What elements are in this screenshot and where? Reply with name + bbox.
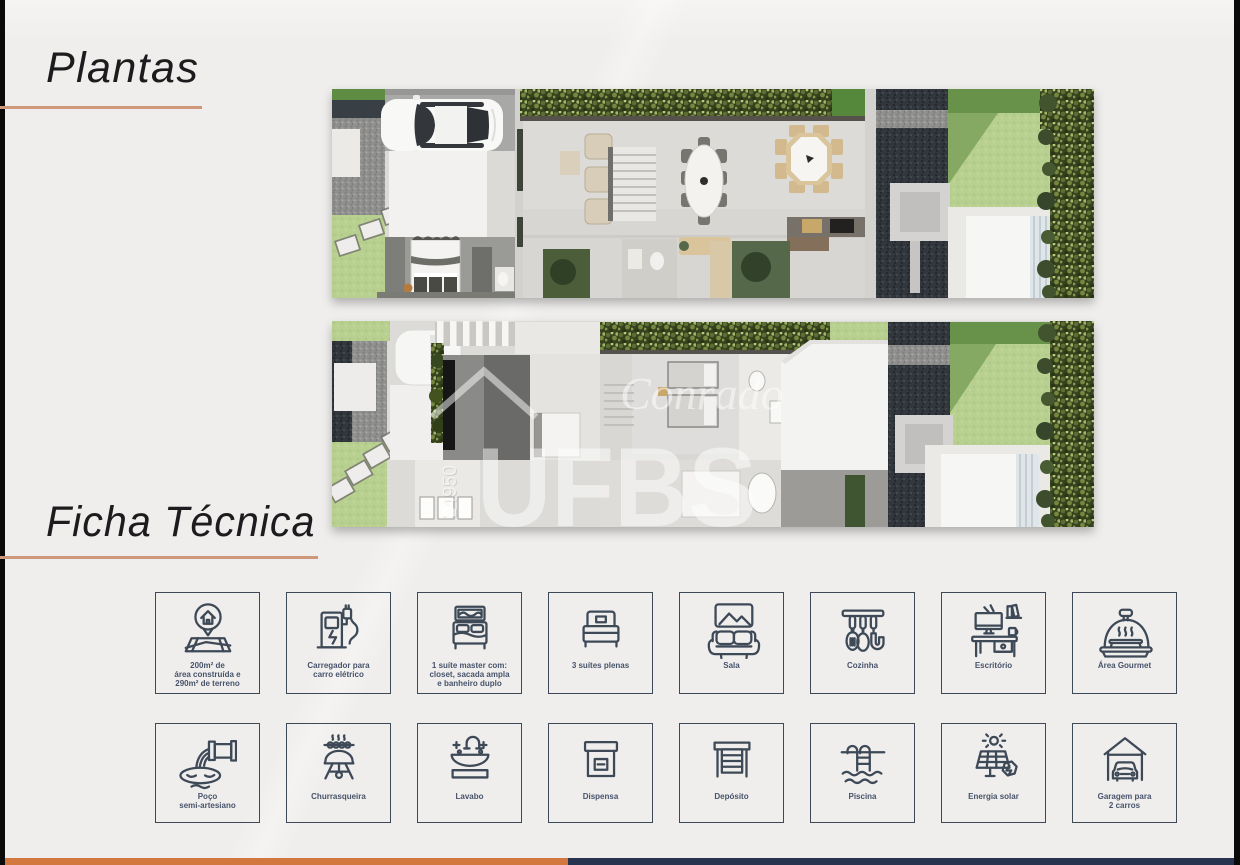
svg-text:UFBS: UFBS — [477, 425, 757, 527]
svg-text:L4950: L4950 — [440, 465, 461, 518]
svg-text:Conrado: Conrado — [620, 368, 784, 419]
